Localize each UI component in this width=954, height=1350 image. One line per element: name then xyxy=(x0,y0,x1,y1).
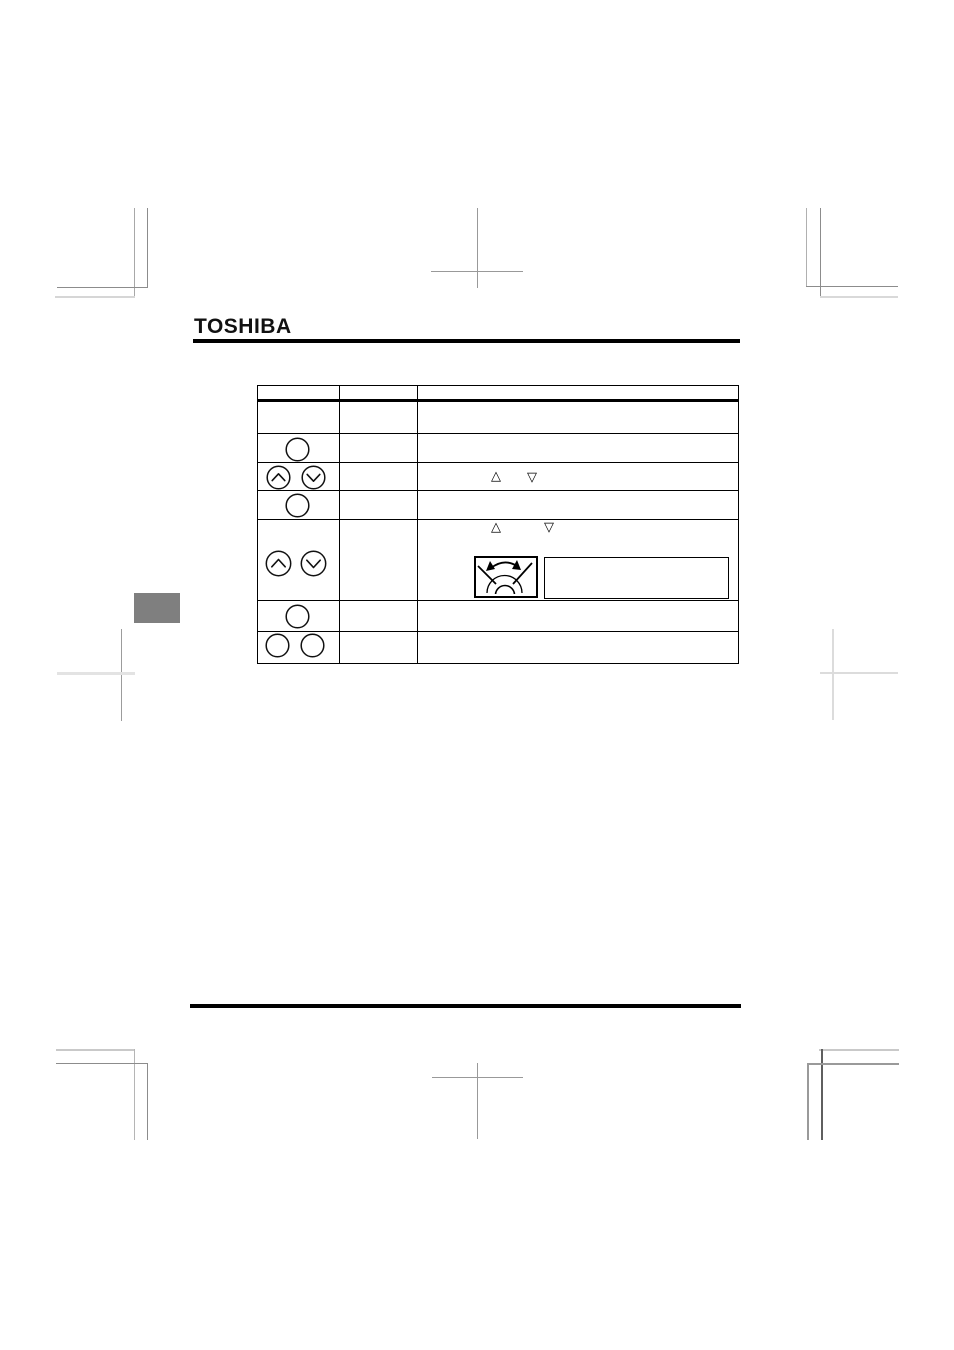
crop-mark-top-right-vertical-outer xyxy=(806,208,807,287)
crop-mark-bottom-left-horizontal-dark xyxy=(56,1063,148,1064)
footer-rule xyxy=(190,1004,741,1008)
triangle-down-icon: ▽ xyxy=(540,519,558,537)
crop-mark-top-left-horizontal-dark xyxy=(57,287,148,288)
crop-mark-bottom-left-horizontal-light xyxy=(56,1049,135,1051)
triangle-up-icon: △ xyxy=(487,519,505,537)
crop-mark-right-middle-horizontal xyxy=(820,672,898,674)
crop-mark-bottom-right-horizontal-light xyxy=(819,1049,899,1051)
table-column-divider-2 xyxy=(417,386,418,663)
crop-mark-bottom-right-horizontal-mid xyxy=(807,1063,899,1065)
crop-mark-top-left-vertical-outer xyxy=(134,208,135,298)
crop-mark-top-center-vertical xyxy=(477,208,478,288)
crop-mark-top-right-vertical-inner xyxy=(820,208,821,298)
empty-description-box xyxy=(544,557,729,599)
table-row-divider xyxy=(258,600,738,601)
crop-mark-top-left-horizontal-light xyxy=(55,296,135,298)
crop-mark-bottom-center-horizontal xyxy=(432,1077,523,1078)
header-rule xyxy=(193,339,740,343)
up-circle-button-icon xyxy=(265,550,292,577)
dial-rotate-illustration xyxy=(476,558,534,594)
crop-mark-top-center-horizontal xyxy=(431,271,523,272)
crop-mark-bottom-right-vertical-mid xyxy=(807,1063,809,1140)
circle-button-icon xyxy=(285,437,310,462)
circle-button-icon xyxy=(265,633,290,658)
up-circle-button-icon xyxy=(266,465,291,490)
crop-mark-top-right-horizontal-light xyxy=(820,296,898,298)
crop-mark-right-middle-vertical xyxy=(832,629,834,720)
button-description-table: △ ▽ △ ▽ xyxy=(257,385,739,664)
circle-button-icon xyxy=(285,604,310,629)
down-circle-button-icon xyxy=(301,465,326,490)
crop-mark-bottom-center-vertical xyxy=(477,1063,478,1139)
triangle-up-icon: △ xyxy=(487,468,505,486)
section-tab-marker xyxy=(134,593,180,623)
scanned-manual-page: TOSHIBA △ ▽ xyxy=(0,0,954,1350)
crop-mark-left-middle-vertical xyxy=(121,629,122,721)
table-row-divider xyxy=(258,631,738,632)
rotary-dial-figure xyxy=(474,556,538,598)
crop-mark-top-left-vertical-inner xyxy=(147,208,148,288)
circle-button-icon xyxy=(300,633,325,658)
table-row-divider xyxy=(258,490,738,491)
table-row-divider xyxy=(258,462,738,463)
table-header-divider xyxy=(258,399,738,402)
table-column-divider-1 xyxy=(339,386,340,663)
toshiba-logo: TOSHIBA xyxy=(194,315,292,339)
table-row-divider xyxy=(258,433,738,434)
triangle-down-icon: ▽ xyxy=(523,469,541,487)
crop-mark-top-right-horizontal-dark xyxy=(806,286,898,287)
crop-mark-left-middle-horizontal xyxy=(57,672,135,675)
crop-mark-bottom-left-vertical-inner xyxy=(147,1063,148,1140)
down-circle-button-icon xyxy=(300,550,327,577)
circle-button-icon xyxy=(285,493,310,518)
